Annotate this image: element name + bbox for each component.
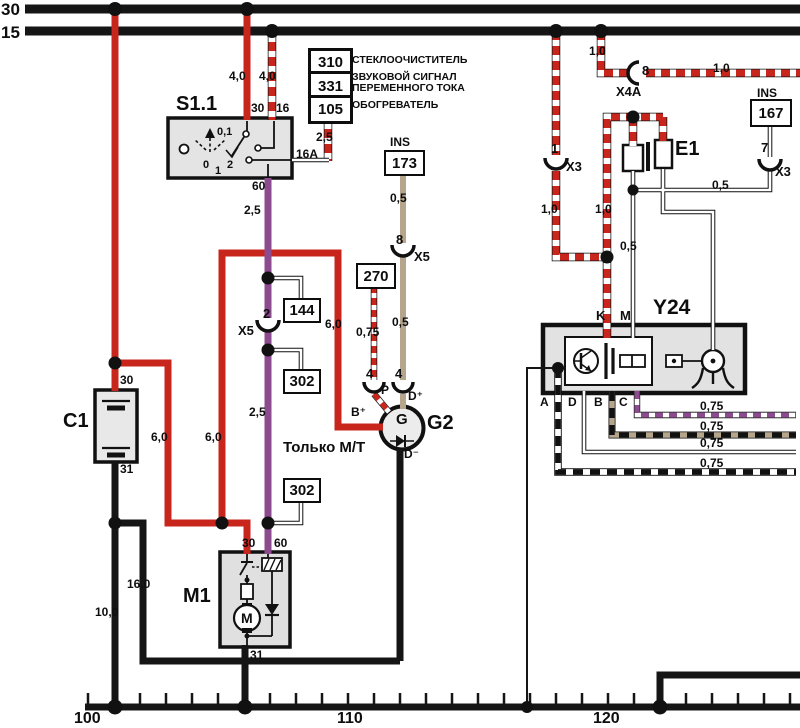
gauge-0-5-g2: 0,5 bbox=[392, 316, 409, 328]
y24-pin-c: C bbox=[619, 396, 628, 408]
s11-pin-16: 16 bbox=[276, 102, 289, 114]
legend-text-331-line2: ПЕРЕМЕННОГО ТОКА bbox=[352, 83, 465, 94]
legend-text-331-line1: ЗВУКОВОЙ СИГНАЛ bbox=[352, 72, 457, 83]
connector-x4a-pin: 8 bbox=[642, 64, 649, 77]
gauge-1-0-right: 1,0 bbox=[595, 203, 612, 215]
g2-name: G2 bbox=[427, 413, 454, 433]
gauge-1-0-x4a-run: 1,0 bbox=[713, 62, 730, 74]
connector-x5-2-pin: 2 bbox=[263, 307, 270, 320]
gauge-2-5-m1: 2,5 bbox=[249, 406, 266, 418]
gauge-0-75-a: 0,75 bbox=[700, 457, 723, 469]
connector-x3-1-pin: 1 bbox=[551, 142, 558, 155]
gauge-4-0-b: 4,0 bbox=[259, 70, 276, 82]
gauge-6-0-a: 6,0 bbox=[151, 431, 168, 443]
c1-pin-30: 30 bbox=[120, 374, 133, 386]
s11-pin-30: 30 bbox=[251, 102, 264, 114]
g2-generator-letter: G bbox=[396, 412, 408, 427]
g2-connector-4b: 4 bbox=[395, 367, 402, 380]
gauge-10-0: 10,0 bbox=[95, 606, 118, 618]
m1-pin-30: 30 bbox=[242, 537, 255, 549]
connector-x5-8-name: X5 bbox=[414, 250, 430, 263]
m1-motor-letter: M bbox=[241, 611, 253, 625]
bus-lines bbox=[25, 9, 800, 31]
y24-pin-k: K bbox=[596, 309, 605, 322]
gauge-0-5-x3: 0,5 bbox=[712, 179, 729, 191]
bus-15-label: 15 bbox=[1, 24, 20, 41]
note-only-mt: Только М/Т bbox=[283, 440, 365, 455]
gauge-2-5-60wire: 2,5 bbox=[244, 204, 261, 216]
gauge-2-5-legend: 2,5 bbox=[316, 131, 333, 143]
connector-x5-2-name: X5 bbox=[238, 324, 254, 337]
s11-inner-value: 0,1 bbox=[217, 127, 232, 138]
e1-name: E1 bbox=[675, 139, 699, 159]
s11-pin-60: 60 bbox=[252, 180, 265, 192]
legend-code-105: 105 bbox=[308, 95, 353, 124]
c1-name: C1 bbox=[63, 411, 89, 431]
g2-pin-dplus: D⁺ bbox=[408, 390, 423, 402]
ruler-mark-120: 120 bbox=[593, 711, 620, 727]
gauge-0-75-270: 0,75 bbox=[356, 326, 379, 338]
connector-x4a-name: X4A bbox=[616, 85, 641, 98]
y24-pin-a: A bbox=[540, 396, 549, 408]
legend-text-105: ОБОГРЕВАТЕЛЬ bbox=[352, 100, 438, 111]
connector-x3-7-name: X3 bbox=[775, 165, 791, 178]
s11-pos-0: 0 bbox=[203, 160, 209, 171]
gauge-6-0-b: 6,0 bbox=[205, 431, 222, 443]
ref-box-270: 270 bbox=[356, 263, 396, 289]
m1-pin-60: 60 bbox=[274, 537, 287, 549]
gauge-16-0: 16,0 bbox=[127, 578, 150, 590]
ref-box-144: 144 bbox=[283, 298, 321, 323]
gauge-0-75-c: 0,75 bbox=[700, 400, 723, 412]
connector-x4a-8-arc bbox=[628, 62, 639, 84]
m1-name: M1 bbox=[183, 586, 211, 606]
legend-text-310: СТЕКЛООЧИСТИТЕЛЬ bbox=[352, 55, 467, 66]
g2-connector-4a: 4 bbox=[366, 367, 373, 380]
ref-box-167: 167 bbox=[750, 99, 792, 127]
gauge-0-75-b: 0,75 bbox=[700, 420, 723, 432]
ref-box-302b: 302 bbox=[283, 478, 321, 503]
s11-pos-2: 2 bbox=[227, 160, 233, 171]
gauge-0-75-d: 0,75 bbox=[700, 437, 723, 449]
connector-x3-1-arc bbox=[545, 158, 567, 169]
m1-starter-motor-symbol bbox=[220, 552, 290, 647]
connector-x5-8-pin: 8 bbox=[396, 233, 403, 246]
ruler-mark-100: 100 bbox=[74, 711, 101, 727]
ref-box-302a: 302 bbox=[283, 369, 321, 394]
y24-pin-b: B bbox=[594, 396, 603, 408]
gauge-1-0-x4a-drop: 1,0 bbox=[589, 45, 606, 57]
ins-tag-173: INS bbox=[390, 136, 410, 148]
g2-pin-dminus: D⁻ bbox=[404, 448, 419, 460]
c1-battery-symbol bbox=[95, 390, 137, 462]
s11-pin-16a: 16A bbox=[296, 148, 318, 160]
m1-pin-31: 31 bbox=[250, 649, 263, 661]
y24-pin-m: M bbox=[620, 309, 631, 322]
y24-pin-d: D bbox=[568, 396, 577, 408]
g2-pin-p: P bbox=[381, 384, 389, 396]
s11-name: S1.1 bbox=[176, 94, 217, 114]
gauge-6-0-g2: 6,0 bbox=[325, 318, 342, 330]
gauge-1-0-left: 1,0 bbox=[541, 203, 558, 215]
connector-x5-2-arc bbox=[257, 320, 279, 331]
s11-pos-1: 1 bbox=[215, 166, 221, 177]
gauge-0-5-m: 0,5 bbox=[620, 240, 637, 252]
ins-tag-167: INS bbox=[757, 87, 777, 99]
y24-name: Y24 bbox=[653, 297, 690, 318]
gauge-0-5-173: 0,5 bbox=[390, 192, 407, 204]
wiring-diagram-page: 30 15 4,0 4,0 S1.1 30 16 0,1 0 1 2 16A 6… bbox=[0, 0, 800, 728]
connector-x3-7-pin: 7 bbox=[761, 141, 768, 154]
ref-box-173: 173 bbox=[384, 150, 425, 176]
bus-30-label: 30 bbox=[1, 1, 20, 18]
ruler-mark-110: 110 bbox=[337, 711, 363, 727]
connector-x3-1-name: X3 bbox=[566, 160, 582, 173]
c1-pin-31: 31 bbox=[120, 463, 133, 475]
gauge-4-0-a: 4,0 bbox=[229, 70, 246, 82]
g2-pin-bplus: B⁺ bbox=[351, 406, 366, 418]
